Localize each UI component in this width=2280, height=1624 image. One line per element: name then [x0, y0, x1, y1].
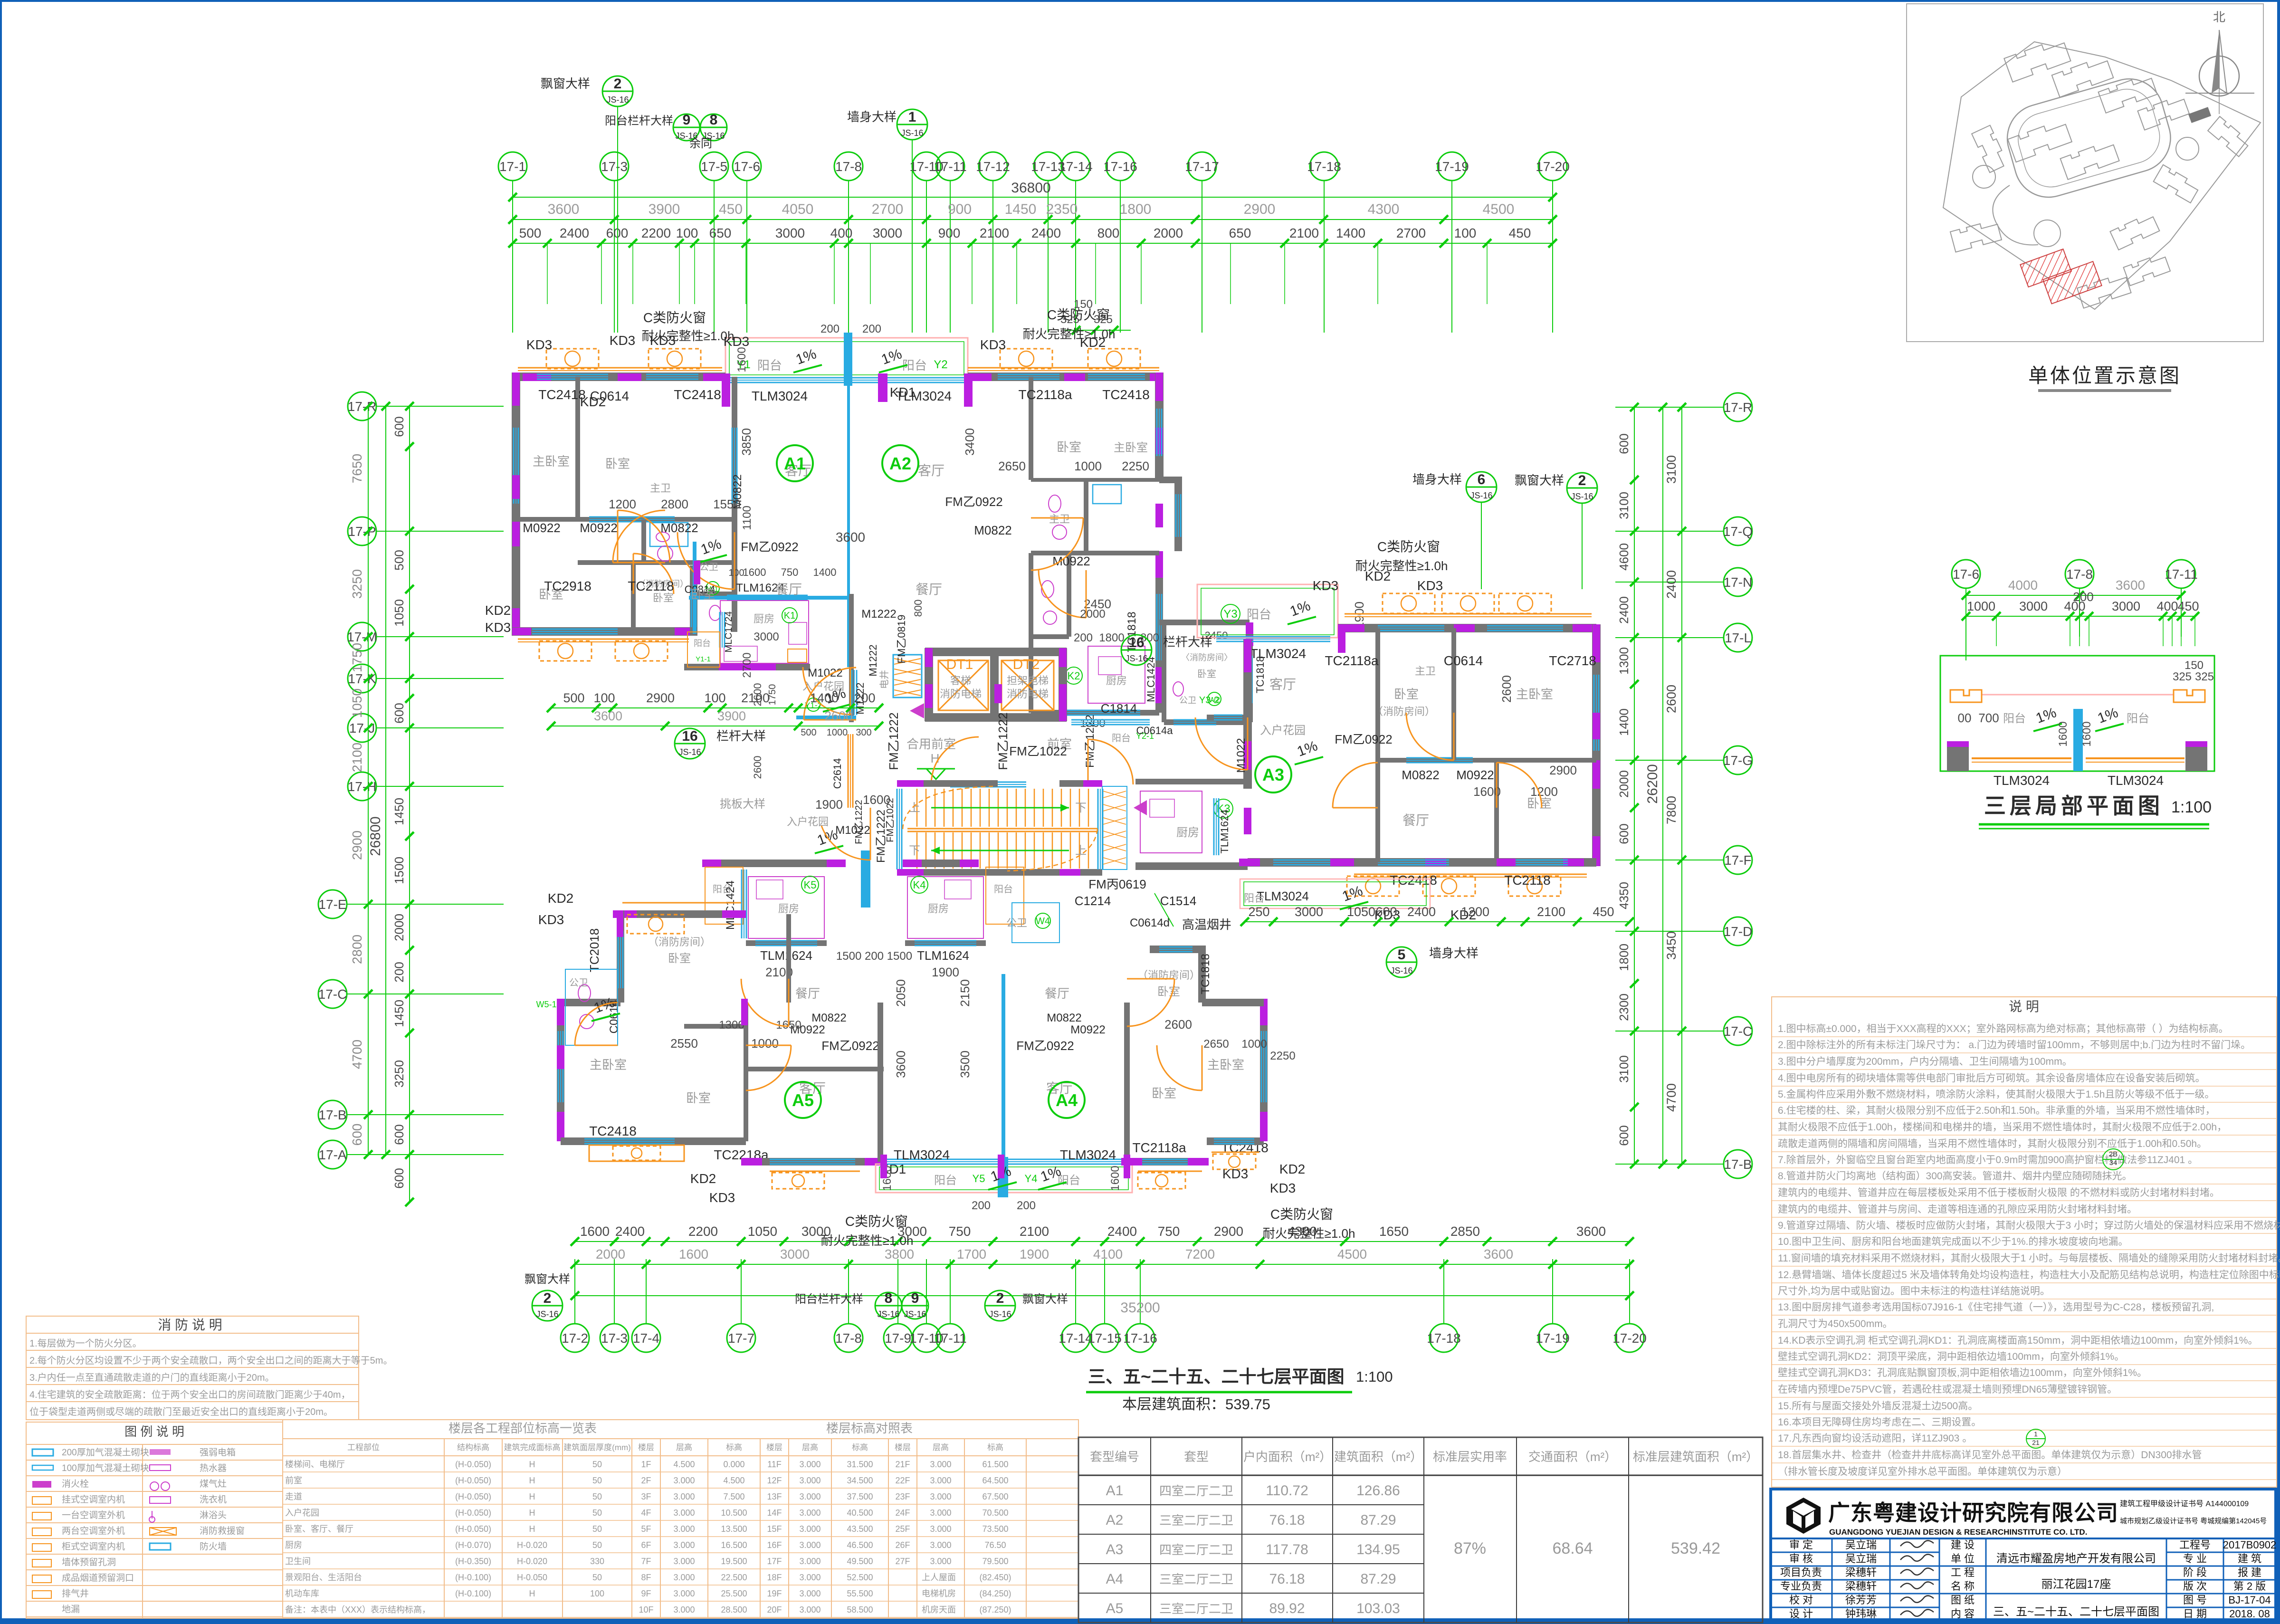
svg-text:楼层标高对照表: 楼层标高对照表: [826, 1421, 913, 1435]
svg-text:9: 9: [683, 112, 691, 128]
svg-text:3.000: 3.000: [799, 1508, 820, 1518]
svg-text:2: 2: [614, 76, 622, 92]
svg-text:卧室: 卧室: [1157, 985, 1180, 998]
svg-text:500: 500: [563, 691, 584, 705]
svg-text:下: 下: [909, 844, 920, 857]
svg-text:3.000: 3.000: [673, 1573, 695, 1582]
svg-text:2200: 2200: [688, 1224, 718, 1239]
svg-text:2900: 2900: [1244, 201, 1276, 217]
svg-text:9.管道穿过隔墙、防火墙、楼板时应做防火封堵，其耐火极限大于: 9.管道穿过隔墙、防火墙、楼板时应做防火封堵，其耐火极限大于3 小时；穿过防火墙…: [1778, 1220, 2280, 1231]
svg-text:68.64: 68.64: [1552, 1539, 1593, 1557]
svg-text:标高: 标高: [987, 1443, 1003, 1452]
svg-text:17-G: 17-G: [1723, 753, 1753, 768]
svg-text:1050: 1050: [1347, 905, 1375, 919]
svg-text:TLM3024: TLM3024: [1994, 773, 2050, 788]
svg-text:三室二厅二卫: 三室二厅二卫: [1159, 1572, 1233, 1586]
svg-text:KD3: KD3: [538, 912, 564, 927]
svg-text:17-N: 17-N: [1724, 575, 1753, 590]
svg-text:厨房: 厨房: [1176, 826, 1199, 839]
svg-text:9: 9: [911, 1290, 919, 1306]
svg-text:栏杆大样: 栏杆大样: [716, 729, 766, 743]
svg-text:KD2: KD2: [1279, 1162, 1305, 1176]
svg-text:43.500: 43.500: [847, 1524, 873, 1534]
svg-text:标准层建筑面积（m²）: 标准层建筑面积（m²）: [1633, 1450, 1758, 1464]
svg-text:挑板大样: 挑板大样: [720, 798, 765, 811]
svg-text:公卫: 公卫: [1006, 917, 1027, 929]
svg-text:1550: 1550: [713, 497, 741, 511]
svg-text:墙身大样: 墙身大样: [1429, 946, 1479, 960]
svg-text:工 程: 工 程: [1951, 1567, 1975, 1578]
svg-text:34.500: 34.500: [847, 1476, 873, 1485]
svg-text:M1022: M1022: [835, 824, 870, 837]
svg-text:卧室: 卧室: [691, 587, 715, 602]
svg-text:19.500: 19.500: [721, 1557, 747, 1566]
svg-text:地漏: 地漏: [62, 1604, 80, 1614]
svg-text:76.18: 76.18: [1269, 1571, 1305, 1587]
svg-text:Y5: Y5: [973, 1173, 985, 1185]
svg-text:3.000: 3.000: [930, 1460, 951, 1469]
svg-text:3000: 3000: [775, 226, 805, 240]
svg-text:103.03: 103.03: [1356, 1601, 1400, 1616]
svg-text:FM乙0922: FM乙0922: [821, 1039, 879, 1053]
svg-text:600: 600: [392, 416, 406, 437]
svg-text:热水器: 热水器: [200, 1463, 227, 1473]
svg-text:3400: 3400: [963, 428, 977, 456]
svg-text:耐火完整性≥1.0h: 耐火完整性≥1.0h: [1355, 559, 1448, 573]
svg-text:FM乙1222: FM乙1222: [854, 800, 864, 844]
svg-text:1600: 1600: [2080, 721, 2093, 746]
svg-text:层高: 层高: [676, 1443, 692, 1452]
svg-text:(H-0.350): (H-0.350): [455, 1557, 491, 1566]
svg-text:2600: 2600: [1499, 675, 1514, 703]
svg-text:入户花园: 入户花园: [1260, 724, 1306, 737]
svg-text:2: 2: [1578, 473, 1586, 488]
svg-text:C1214: C1214: [1075, 894, 1111, 908]
svg-text:3.000: 3.000: [930, 1540, 951, 1550]
svg-text:1600: 1600: [580, 1224, 610, 1239]
svg-text:3.000: 3.000: [673, 1557, 695, 1566]
svg-text:合用前室: 合用前室: [906, 737, 956, 751]
svg-text:客梯: 客梯: [950, 675, 971, 687]
svg-text:3.000: 3.000: [799, 1557, 820, 1566]
svg-text:17-1: 17-1: [499, 159, 526, 174]
svg-text:1800: 1800: [1617, 944, 1631, 971]
svg-text:楼层: 楼层: [638, 1443, 654, 1452]
svg-text:审 核: 审 核: [1789, 1553, 1813, 1565]
svg-text:煤气灶: 煤气灶: [200, 1479, 227, 1489]
svg-text:(H-0.070): (H-0.070): [455, 1540, 491, 1550]
svg-text:500: 500: [801, 727, 816, 738]
svg-text:卧室、客厅、餐厅: 卧室、客厅、餐厅: [285, 1524, 353, 1534]
svg-text:H-0.020: H-0.020: [517, 1540, 547, 1550]
svg-text:18F: 18F: [767, 1573, 782, 1582]
svg-text:3.000: 3.000: [799, 1540, 820, 1550]
svg-text:卧室: 卧室: [1197, 669, 1216, 679]
svg-text:三室二厅二卫: 三室二厅二卫: [1159, 1513, 1233, 1528]
svg-text:3.000: 3.000: [930, 1557, 951, 1566]
svg-text:MLC1424: MLC1424: [1145, 657, 1157, 702]
svg-text:1600: 1600: [1109, 1165, 1122, 1191]
svg-text:KD2: KD2: [485, 603, 511, 618]
svg-text:3F: 3F: [641, 1492, 651, 1501]
svg-text:9F: 9F: [641, 1589, 651, 1598]
svg-text:2600: 2600: [1664, 685, 1679, 713]
svg-text:疏散走道两侧的隔墙和房间隔墙，当采用不燃性墙体时，其耐火极限: 疏散走道两侧的隔墙和房间隔墙，当采用不燃性墙体时，其耐火极限分别不应低于1.00…: [1778, 1138, 2207, 1149]
svg-text:21F: 21F: [895, 1460, 910, 1469]
svg-text:3.000: 3.000: [673, 1492, 695, 1501]
svg-text:3.000: 3.000: [799, 1476, 820, 1485]
svg-text:JS-16: JS-16: [989, 1309, 1011, 1319]
svg-text:两台空调室外机: 两台空调室外机: [62, 1526, 125, 1536]
svg-text:28.500: 28.500: [721, 1605, 747, 1614]
svg-text:17-L: 17-L: [1725, 630, 1751, 645]
svg-text:H: H: [529, 1524, 535, 1534]
svg-text:3.000: 3.000: [799, 1492, 820, 1501]
svg-text:2017B0902: 2017B0902: [2223, 1539, 2277, 1551]
svg-text:500: 500: [519, 226, 542, 240]
svg-text:1300: 1300: [1617, 647, 1631, 675]
svg-text:8F: 8F: [641, 1573, 651, 1582]
svg-text:4700: 4700: [350, 1040, 364, 1069]
svg-text:3.000: 3.000: [930, 1524, 951, 1534]
svg-text:消防救援窗: 消防救援窗: [200, 1526, 245, 1536]
svg-text:吴立瑞: 吴立瑞: [1845, 1553, 1877, 1565]
svg-text:3900: 3900: [717, 709, 746, 723]
svg-text:2100: 2100: [1537, 905, 1565, 919]
svg-text:3.000: 3.000: [673, 1508, 695, 1518]
svg-text:JS-16: JS-16: [606, 95, 629, 105]
svg-text:4050: 4050: [782, 201, 814, 217]
svg-text:楼层: 楼层: [766, 1443, 782, 1452]
svg-text:700: 700: [1978, 711, 1999, 725]
svg-text:前室: 前室: [285, 1476, 302, 1485]
svg-text:600: 600: [392, 1124, 406, 1145]
svg-text:(H-0.050): (H-0.050): [455, 1524, 491, 1534]
svg-text:450: 450: [719, 201, 743, 217]
svg-text:46.500: 46.500: [847, 1540, 873, 1550]
svg-text:64.500: 64.500: [982, 1476, 1008, 1485]
svg-text:17-R: 17-R: [348, 399, 377, 414]
svg-text:(H-0.100): (H-0.100): [455, 1589, 491, 1598]
svg-text:KD1: KD1: [890, 385, 916, 400]
svg-text:250: 250: [1248, 905, 1269, 919]
svg-text:报 建: 报 建: [2238, 1567, 2261, 1578]
svg-text:2018. 08: 2018. 08: [2229, 1608, 2270, 1620]
svg-text:00: 00: [1958, 711, 1972, 725]
svg-text:Y1-1: Y1-1: [696, 655, 711, 663]
svg-text:1000: 1000: [1241, 1038, 1267, 1051]
svg-text:450: 450: [2177, 599, 2199, 613]
svg-text:16.500: 16.500: [721, 1540, 747, 1550]
svg-text:M1022: M1022: [1235, 738, 1248, 773]
svg-text:2700: 2700: [872, 201, 904, 217]
svg-text:200: 200: [2073, 590, 2093, 604]
svg-text:24F: 24F: [895, 1508, 910, 1518]
svg-text:KD3: KD3: [485, 620, 511, 635]
svg-text:尺寸外,均为居中或贴窗边。图中未标注的构造柱详结施说明。: 尺寸外,均为居中或贴窗边。图中未标注的构造柱详结施说明。: [1778, 1286, 2050, 1297]
svg-text:100: 100: [1454, 226, 1477, 240]
svg-text:A1: A1: [1106, 1483, 1124, 1499]
svg-text:FM乙0922: FM乙0922: [1335, 732, 1392, 746]
svg-text:飘窗大样: 飘窗大样: [541, 76, 590, 91]
svg-text:电梯机房: 电梯机房: [922, 1589, 956, 1598]
svg-text:(H-0.100): (H-0.100): [455, 1573, 491, 1582]
svg-text:H-0.020: H-0.020: [517, 1557, 547, 1566]
svg-text:3.000: 3.000: [673, 1476, 695, 1485]
svg-text:2800: 2800: [350, 935, 364, 964]
svg-text:50: 50: [592, 1508, 602, 1518]
svg-text:交通面积（m²）: 交通面积（m²）: [1528, 1450, 1617, 1464]
svg-text:600: 600: [1375, 905, 1397, 919]
svg-text:卧室: 卧室: [1394, 687, 1419, 701]
svg-text:C2614: C2614: [831, 758, 843, 789]
svg-text:主卧室: 主卧室: [590, 1058, 627, 1072]
svg-text:330: 330: [590, 1557, 604, 1566]
svg-text:26800: 26800: [368, 816, 383, 856]
svg-text:M0822: M0822: [1047, 1012, 1081, 1024]
svg-text:KD3: KD3: [610, 333, 635, 348]
svg-text:2800: 2800: [661, 497, 688, 511]
svg-text:2000: 2000: [596, 1247, 625, 1261]
svg-text:JS-16: JS-16: [1571, 492, 1593, 501]
svg-text:1%: 1%: [794, 346, 819, 368]
svg-text:2400: 2400: [1107, 1224, 1137, 1239]
svg-text:M0922: M0922: [1070, 1023, 1105, 1036]
svg-text:13F: 13F: [767, 1492, 782, 1501]
svg-text:KD2: KD2: [690, 1171, 716, 1186]
svg-text:A5: A5: [792, 1090, 814, 1110]
svg-text:2.每个防火分区均设置不少于两个安全疏散口，两个安全出口之间: 2.每个防火分区均设置不少于两个安全疏散口，两个安全出口之间的距离大于等于5m。: [29, 1355, 392, 1366]
svg-text:25F: 25F: [895, 1524, 910, 1534]
svg-text:1400: 1400: [1336, 226, 1365, 240]
svg-text:3500: 3500: [958, 1051, 972, 1078]
svg-text:34: 34: [2109, 1159, 2118, 1167]
svg-text:7.500: 7.500: [723, 1492, 744, 1501]
svg-text:3.图中分户墙厚度为200mm，户内分隔墙、卫生间隔墙为10: 3.图中分户墙厚度为200mm，户内分隔墙、卫生间隔墙为100mm。: [1778, 1056, 2072, 1067]
svg-text:(H-0.050): (H-0.050): [455, 1460, 491, 1469]
svg-text:FM乙1222: FM乙1222: [887, 712, 901, 770]
svg-text:17.凡东西向窗均设活动遮阳，详11ZJ903 。: 17.凡东西向窗均设活动遮阳，详11ZJ903 。: [1778, 1433, 1972, 1444]
svg-text:17-D: 17-D: [1724, 924, 1753, 939]
svg-text:栏杆大样: 栏杆大样: [1163, 635, 1212, 649]
svg-text:2650: 2650: [998, 459, 1026, 473]
svg-text:单体位置示意图: 单体位置示意图: [2028, 364, 2181, 387]
svg-text:钟玮琳: 钟玮琳: [1845, 1608, 1877, 1620]
svg-text:3250: 3250: [350, 569, 364, 599]
svg-text:76.50: 76.50: [984, 1540, 1006, 1550]
svg-text:50: 50: [592, 1476, 602, 1485]
svg-text:3250: 3250: [392, 1060, 406, 1088]
svg-text:325: 325: [2195, 670, 2214, 683]
svg-text:耐火完整性≥1.0h: 耐火完整性≥1.0h: [1263, 1226, 1355, 1241]
svg-text:K4: K4: [913, 879, 926, 891]
svg-text:2250: 2250: [1122, 459, 1149, 473]
svg-text:10.图中卫生间、厨房和阳台地面建筑完成面以不少于1%.的排: 10.图中卫生间、厨房和阳台地面建筑完成面以不少于1%.的排水坡度坡向地漏。: [1778, 1236, 2128, 1247]
svg-text:600: 600: [392, 1168, 406, 1188]
svg-text:工程部位: 工程部位: [347, 1443, 380, 1452]
svg-text:餐厅: 餐厅: [795, 986, 820, 1001]
svg-text:2900: 2900: [646, 691, 675, 705]
svg-text:3.000: 3.000: [799, 1460, 820, 1469]
svg-text:4500: 4500: [1483, 201, 1515, 217]
svg-text:1%: 1%: [879, 346, 904, 368]
svg-text:17-C: 17-C: [318, 987, 347, 1002]
svg-text:17-18: 17-18: [1427, 1331, 1461, 1346]
svg-text:FM乙1222: FM乙1222: [875, 810, 887, 863]
svg-text:TLM3024: TLM3024: [1060, 1147, 1116, 1162]
svg-text:主卧室: 主卧室: [1114, 441, 1148, 454]
svg-text:2F: 2F: [641, 1476, 651, 1485]
svg-text:阳台: 阳台: [1244, 892, 1265, 904]
svg-text:1: 1: [908, 109, 916, 125]
svg-text:(84.250): (84.250): [979, 1589, 1011, 1598]
svg-text:2000: 2000: [1617, 770, 1631, 798]
svg-text:7F: 7F: [641, 1557, 651, 1566]
svg-text:1%: 1%: [1288, 598, 1313, 620]
svg-text:750: 750: [781, 566, 799, 578]
svg-text:上: 上: [1075, 844, 1087, 857]
svg-text:17-20: 17-20: [1612, 1331, 1647, 1346]
svg-text:200: 200: [1017, 1199, 1036, 1212]
svg-text:A4: A4: [1106, 1571, 1124, 1587]
svg-text:5.金属构件应采用外敷不燃烧材料，喷涂防火涂料，使其耐火极限: 5.金属构件应采用外敷不燃烧材料，喷涂防火涂料，使其耐火极限大于1.5h且防火等…: [1778, 1089, 2214, 1100]
svg-text:TC2418: TC2418: [538, 387, 586, 402]
svg-text:本层建筑面积：539.75: 本层建筑面积：539.75: [1122, 1396, 1270, 1413]
svg-text:8: 8: [885, 1290, 893, 1306]
svg-text:餐厅: 餐厅: [1045, 986, 1069, 1001]
svg-text:150: 150: [2185, 659, 2204, 672]
svg-text:200: 200: [820, 323, 839, 335]
svg-text:600: 600: [350, 1124, 364, 1146]
svg-text:800: 800: [912, 600, 924, 617]
svg-text:50: 50: [592, 1460, 602, 1469]
svg-text:JS-16: JS-16: [1125, 654, 1147, 663]
svg-text:17-19: 17-19: [1435, 159, 1469, 174]
svg-text:3.000: 3.000: [930, 1508, 951, 1518]
svg-text:耐火完整性≥1.0h: 耐火完整性≥1.0h: [821, 1233, 914, 1248]
svg-text:客厅: 客厅: [1269, 677, 1296, 692]
svg-text:16.本项目无障碍住房均考虑在二、三期设置。: 16.本项目无障碍住房均考虑在二、三期设置。: [1778, 1417, 1981, 1428]
svg-text:900: 900: [948, 201, 972, 217]
svg-text:H: H: [931, 751, 940, 765]
svg-text:户内面积（m²）: 户内面积（m²）: [1243, 1450, 1332, 1464]
svg-text:TC2118: TC2118: [1504, 873, 1551, 888]
svg-text:建筑工程甲级设计证书号 A144000109: 建筑工程甲级设计证书号 A144000109: [2120, 1500, 2249, 1508]
svg-text:3.000: 3.000: [673, 1605, 695, 1614]
svg-text:1: 1: [2034, 1430, 2038, 1438]
svg-text:126.86: 126.86: [1356, 1483, 1400, 1499]
svg-text:层高: 层高: [933, 1443, 949, 1452]
svg-text:A5: A5: [1106, 1601, 1124, 1616]
svg-text:三层局部平面图: 三层局部平面图: [1984, 793, 2164, 818]
svg-text:17-11: 17-11: [934, 159, 967, 174]
svg-text:挂式空调室内机: 挂式空调室内机: [62, 1494, 125, 1505]
svg-text:2400: 2400: [615, 1224, 645, 1239]
svg-text:Y2: Y2: [934, 358, 947, 371]
svg-text:4300: 4300: [1368, 201, 1400, 217]
svg-text:卧室: 卧室: [686, 1091, 711, 1105]
svg-text:机动车库: 机动车库: [285, 1589, 319, 1598]
svg-text:17-16: 17-16: [1123, 1331, 1157, 1346]
svg-text:FM乙0922: FM乙0922: [741, 540, 798, 554]
svg-text:阳台: 阳台: [934, 1174, 957, 1187]
svg-text:600: 600: [1617, 823, 1631, 844]
svg-text:建筑完成面标高: 建筑完成面标高: [504, 1443, 561, 1452]
svg-text:梁穗轩: 梁穗轩: [1845, 1567, 1877, 1578]
svg-text:TC1818: TC1818: [1199, 954, 1212, 994]
svg-text:650: 650: [709, 226, 732, 240]
svg-text:3100: 3100: [1664, 455, 1679, 484]
svg-text:17-16: 17-16: [1103, 159, 1137, 174]
svg-text:27F: 27F: [895, 1557, 910, 1566]
svg-text:73.500: 73.500: [982, 1524, 1008, 1534]
svg-text:10.500: 10.500: [721, 1508, 747, 1518]
svg-text:1200: 1200: [1530, 784, 1558, 799]
svg-text:0.000: 0.000: [723, 1460, 744, 1469]
svg-text:16: 16: [682, 728, 697, 744]
svg-text:厨房: 厨房: [1106, 675, 1127, 687]
svg-text:1500 200 1500: 1500 200 1500: [836, 950, 912, 963]
svg-text:61.500: 61.500: [982, 1460, 1008, 1469]
svg-text:JS-16: JS-16: [1470, 491, 1492, 500]
svg-text:4600: 4600: [1617, 543, 1631, 571]
svg-text:M0822: M0822: [1402, 768, 1440, 782]
svg-text:8: 8: [710, 112, 718, 128]
svg-text:建筑面层厚度(mm): 建筑面层厚度(mm): [563, 1443, 631, 1452]
svg-text:600: 600: [392, 703, 406, 723]
svg-text:1700: 1700: [957, 1247, 986, 1261]
svg-text:134.95: 134.95: [1356, 1542, 1400, 1557]
svg-text:TC2118a: TC2118a: [1132, 1140, 1186, 1155]
svg-text:C类防火窗: C类防火窗: [643, 310, 706, 325]
svg-text:17-E: 17-E: [318, 897, 346, 912]
svg-text:20F: 20F: [767, 1605, 782, 1614]
svg-text:17-P: 17-P: [348, 524, 376, 539]
svg-text:在砖墙内预埋De75PVC管，若遇砼柱或混凝土墙则预埋DN6: 在砖墙内预埋De75PVC管，若遇砼柱或混凝土墙则预埋DN65薄壁镀锌钢管。: [1778, 1384, 2117, 1395]
svg-text:飘窗大样: 飘窗大样: [525, 1273, 570, 1286]
svg-text:1050: 1050: [350, 688, 364, 718]
svg-text:(H-0.050): (H-0.050): [455, 1492, 491, 1501]
svg-text:2900: 2900: [1549, 763, 1577, 777]
svg-text:12F: 12F: [767, 1476, 782, 1485]
svg-text:JS-16: JS-16: [877, 1309, 899, 1319]
svg-text:TC2918: TC2918: [544, 579, 591, 593]
svg-text:67.500: 67.500: [982, 1492, 1008, 1501]
svg-text:耐火完整性≥1.0h: 耐火完整性≥1.0h: [642, 329, 735, 343]
svg-text:H: H: [529, 1589, 535, 1598]
svg-text:内 容: 内 容: [1951, 1608, 1975, 1620]
svg-text:3600: 3600: [894, 1051, 908, 1078]
svg-text:KD3: KD3: [980, 337, 1006, 352]
svg-text:17-19: 17-19: [1536, 1331, 1570, 1346]
svg-text:专 业: 专 业: [2183, 1553, 2207, 1565]
svg-text:卧室: 卧室: [668, 952, 691, 965]
svg-text:40.500: 40.500: [847, 1508, 873, 1518]
svg-text:结构标高: 结构标高: [457, 1443, 489, 1452]
svg-text:10F: 10F: [639, 1605, 653, 1614]
svg-text:C类防火窗: C类防火窗: [1047, 307, 1110, 322]
svg-text:31.500: 31.500: [847, 1460, 873, 1469]
svg-text:K2: K2: [1068, 670, 1080, 682]
svg-text:KD2: KD2: [548, 891, 573, 906]
svg-text:四室二厅二卫: 四室二厅二卫: [1159, 1543, 1233, 1557]
svg-text:1100: 1100: [741, 506, 754, 530]
svg-text:1600: 1600: [735, 347, 748, 372]
svg-text:2600: 2600: [1164, 1017, 1192, 1032]
svg-text:11F: 11F: [767, 1460, 782, 1469]
svg-text:26200: 26200: [1645, 764, 1660, 803]
svg-text:M0822: M0822: [811, 1012, 846, 1024]
